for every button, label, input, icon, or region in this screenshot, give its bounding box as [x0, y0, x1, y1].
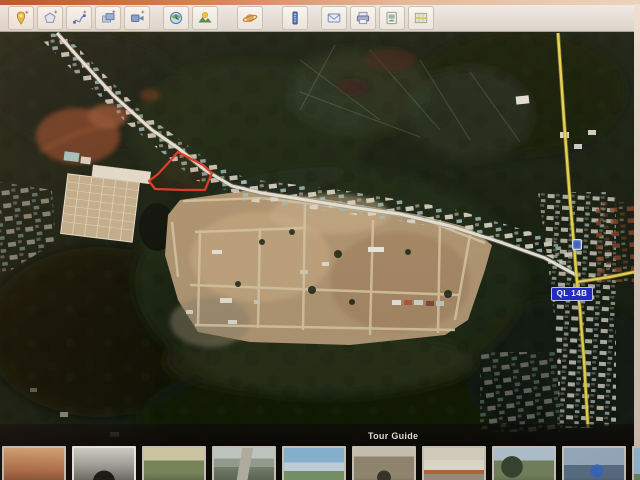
record-tour-button[interactable]: [124, 6, 150, 30]
tour-thumbnail-row: [2, 446, 640, 480]
add-placemark-button[interactable]: [8, 6, 34, 30]
add-image-overlay-button[interactable]: [95, 6, 121, 30]
print-button[interactable]: [350, 6, 376, 30]
tour-thumbnail-temple-gate[interactable]: [352, 446, 416, 480]
historical-imagery-icon: [168, 10, 184, 26]
save-image-button[interactable]: [379, 6, 405, 30]
tour-thumbnail-bridge-road[interactable]: [212, 446, 276, 480]
tour-thumbnail-street-trees[interactable]: [492, 446, 556, 480]
tour-thumbnail-riverside-figure[interactable]: [562, 446, 626, 480]
record-tour-icon: [129, 10, 145, 26]
planets-icon: [242, 10, 258, 26]
tour-guide-panel: Tour Guide: [0, 424, 640, 480]
road-badge-ql14b: QL 14B: [551, 287, 593, 301]
add-image-overlay-icon: [100, 10, 116, 26]
add-path-icon: [71, 10, 87, 26]
sunlight-button[interactable]: [192, 6, 218, 30]
road-marker-icon[interactable]: [572, 239, 582, 250]
ruler-icon: [287, 10, 303, 26]
tour-thumbnail-tunnel-bw-photo[interactable]: [72, 446, 136, 480]
photo-bezel-top: [0, 0, 640, 5]
toolbar: [0, 5, 640, 32]
tour-thumbnail-city-panorama[interactable]: [2, 446, 66, 480]
tour-thumbnail-colonnade-building[interactable]: [422, 446, 486, 480]
tour-thumbnail-palm-town-view[interactable]: [142, 446, 206, 480]
tour-guide-title: Tour Guide: [368, 431, 418, 441]
add-placemark-icon: [13, 10, 29, 26]
ruler-button[interactable]: [282, 6, 308, 30]
email-icon: [326, 10, 342, 26]
view-in-maps-icon: [413, 10, 429, 26]
add-polygon-icon: [42, 10, 58, 26]
add-path-button[interactable]: [66, 6, 92, 30]
sunlight-icon: [197, 10, 213, 26]
tour-thumbnail-coastal-view[interactable]: [282, 446, 346, 480]
planets-button[interactable]: [237, 6, 263, 30]
add-polygon-button[interactable]: [37, 6, 63, 30]
save-image-icon: [384, 10, 400, 26]
satellite-map-view[interactable]: [0, 32, 634, 480]
view-in-maps-button[interactable]: [408, 6, 434, 30]
historical-imagery-button[interactable]: [163, 6, 189, 30]
email-button[interactable]: [321, 6, 347, 30]
screenshot-root: QL 14B Tour Guide: [0, 0, 640, 480]
photo-bezel-right: [634, 4, 640, 448]
print-icon: [355, 10, 371, 26]
tour-thumbnail-white-tower[interactable]: [632, 446, 640, 480]
